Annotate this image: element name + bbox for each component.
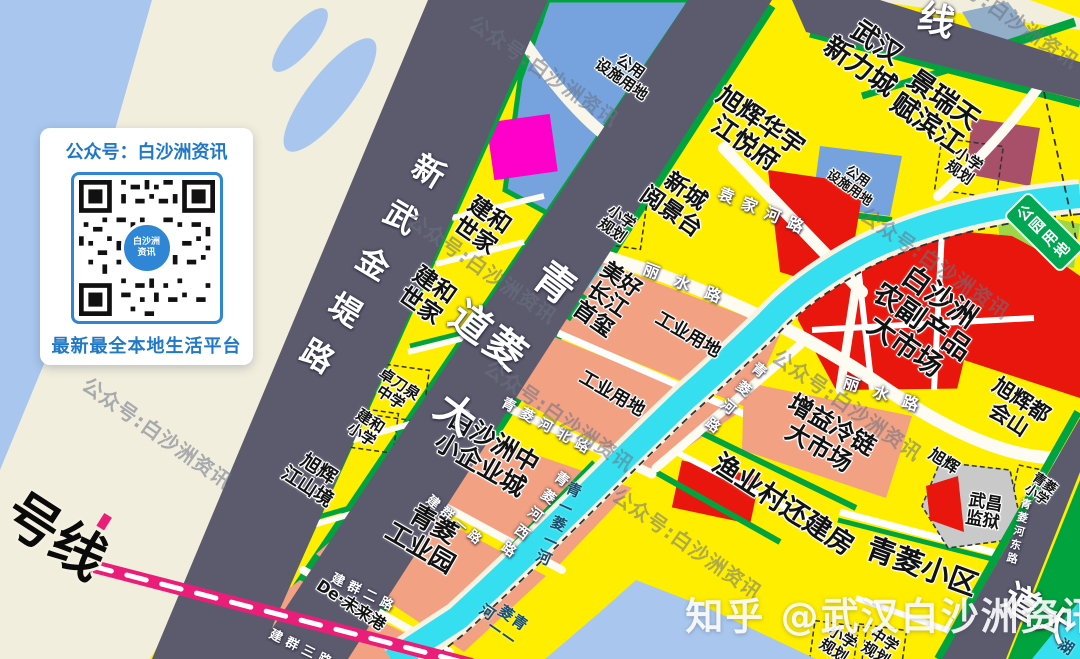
- qr-card: 公众号：白沙洲资讯: [40, 128, 253, 365]
- label-xuhui-huayu-jiangyuefu: 旭辉华宇 江悦府: [697, 81, 810, 183]
- label-xincheng-yuejingtai: 新城 阅景台: [635, 162, 720, 242]
- label-road-qinglinghelu: 青菱河路: [695, 358, 768, 441]
- label-river-qinglinghe-2: 青—菱—河: [469, 592, 531, 651]
- label-xuhui-jiangshanjing: 旭辉 江山境: [278, 445, 348, 510]
- label-xuhui-duhuishan: 旭辉都会山: [975, 373, 1054, 446]
- label-wuchang-jianyu: 武昌 监狱: [964, 491, 1004, 533]
- label-road-lishuilu-1: 丽水路: [641, 260, 740, 312]
- label-road-qinglinghe-donglu: 青菱河东路: [1004, 497, 1032, 568]
- qr-code: 白沙洲 资讯: [71, 172, 223, 324]
- label-road-yuanjiahelu: 袁家河路: [716, 185, 815, 240]
- qr-card-title: 公众号：白沙洲资讯: [40, 138, 253, 164]
- label-xuhui: 旭辉: [926, 445, 962, 477]
- map-canvas: 武汉 新力城景瑞天 赋滨江小学 规划公用 设施用地旭辉华宇 江悦府新城 阅景台小…: [0, 0, 1080, 659]
- label-gongye-yongdi-1: 工业用地: [652, 309, 724, 362]
- label-gongye-yongdi-2: 工业用地: [576, 368, 648, 421]
- label-road-ring-xian: 线: [914, 0, 959, 45]
- qr-card-footer: 最新最全本地生活平台: [40, 332, 253, 358]
- label-metro-haoxian: 号线: [0, 483, 116, 591]
- label-xiaoxue-guihua-2: 小学 规划: [595, 202, 638, 246]
- qr-center-badge: 白沙洲 资讯: [121, 222, 173, 274]
- label-road-jianqun-sanlu: 建群三路: [267, 628, 338, 659]
- zhihu-watermark: 知乎 @武汉白沙洲资讯: [685, 586, 1080, 641]
- watermark-text-5: 公众号:白沙洲资讯: [77, 369, 239, 494]
